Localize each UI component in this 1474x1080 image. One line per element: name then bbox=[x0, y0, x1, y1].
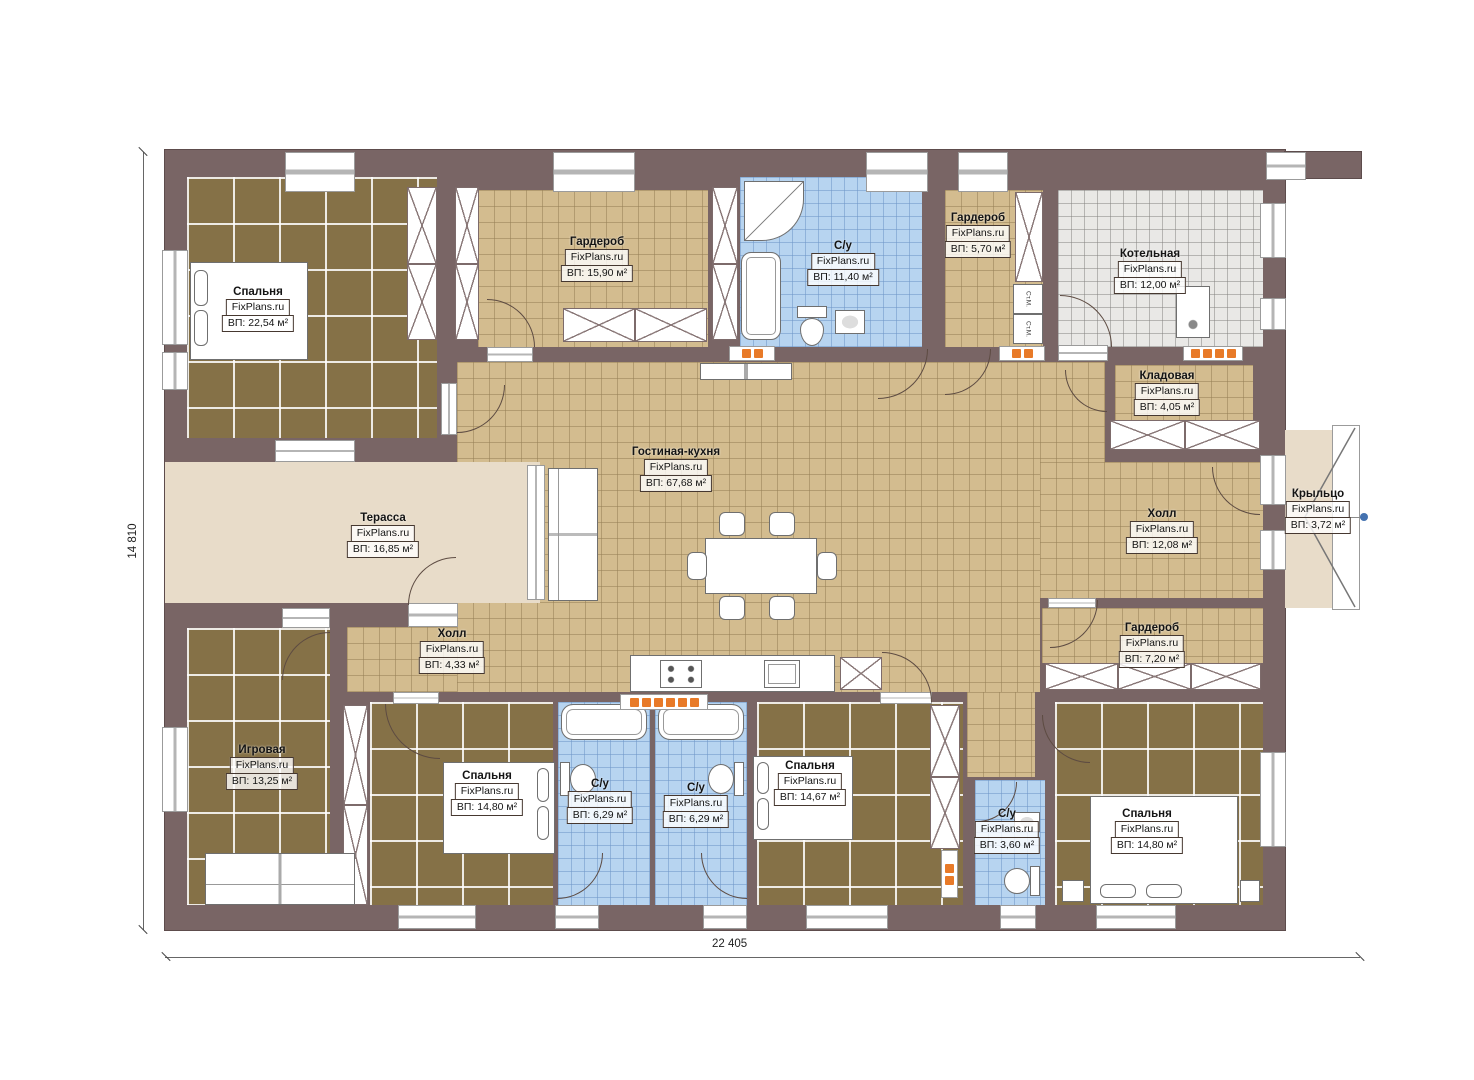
vent-strip bbox=[1183, 346, 1243, 361]
room-label-playroom: Игровая FixPlans.ru ВП: 13,25 м² bbox=[226, 744, 298, 790]
room-site: FixPlans.ru bbox=[420, 641, 485, 658]
chair bbox=[769, 512, 795, 536]
room-label-bedroom-bottom-right: Спальня FixPlans.ru ВП: 14,80 м² bbox=[1111, 808, 1183, 854]
room-name: Котельная bbox=[1114, 248, 1186, 260]
nightstand bbox=[1062, 880, 1084, 902]
room-site: FixPlans.ru bbox=[664, 795, 729, 812]
room-label-pantry: Кладовая FixPlans.ru ВП: 4,05 м² bbox=[1134, 370, 1200, 416]
room-label-porch: Крыльцо FixPlans.ru ВП: 3,72 м² bbox=[1285, 488, 1351, 534]
room-area: ВП: 22,54 м² bbox=[222, 315, 294, 332]
window bbox=[162, 250, 188, 345]
room-area: ВП: 5,70 м² bbox=[945, 241, 1011, 258]
room-name: Спальня bbox=[1111, 808, 1183, 820]
room-area: ВП: 11,40 м² bbox=[807, 269, 879, 286]
window bbox=[1000, 905, 1036, 929]
dishwasher bbox=[840, 657, 882, 690]
room-area: ВП: 15,90 м² bbox=[561, 265, 633, 282]
window bbox=[398, 905, 476, 929]
room-site: FixPlans.ru bbox=[1286, 501, 1351, 518]
room-area: ВП: 4,33 м² bbox=[419, 657, 485, 674]
closet-hatch bbox=[712, 187, 738, 264]
floor-plan-canvas: Ст.М. Ст.М. Спальня FixPlans.ru ВП: 22,5… bbox=[0, 0, 1474, 1080]
window bbox=[162, 727, 188, 812]
pillow bbox=[1100, 884, 1136, 898]
door-threshold bbox=[282, 608, 330, 628]
dimension-line-vertical bbox=[143, 152, 144, 930]
washer-label: Ст.М. bbox=[1025, 291, 1032, 307]
room-area: ВП: 6,29 м² bbox=[663, 811, 729, 828]
room-name: Гардероб bbox=[945, 212, 1011, 224]
room-label-bath-bottom-2: С/у FixPlans.ru ВП: 6,29 м² bbox=[663, 782, 729, 828]
dimension-width: 22 405 bbox=[712, 938, 747, 950]
room-label-bath-bottom-right: С/у FixPlans.ru ВП: 3,60 м² bbox=[974, 808, 1040, 854]
window bbox=[1260, 530, 1286, 570]
room-name: С/у bbox=[974, 808, 1040, 820]
washer: Ст.М. bbox=[1013, 314, 1043, 344]
room-area: ВП: 16,85 м² bbox=[347, 541, 419, 558]
room-label-bath-top: С/у FixPlans.ru ВП: 11,40 м² bbox=[807, 240, 879, 286]
room-label-bedroom-bottom-left: Спальня FixPlans.ru ВП: 14,80 м² bbox=[451, 770, 523, 816]
closet-hatch bbox=[455, 264, 479, 340]
pillow bbox=[1146, 884, 1182, 898]
floor-corridor-down bbox=[967, 692, 1035, 777]
chair bbox=[719, 596, 745, 620]
pantry-shelving bbox=[1185, 420, 1260, 450]
toilet-bowl bbox=[1004, 868, 1030, 894]
room-site: FixPlans.ru bbox=[1130, 521, 1195, 538]
room-site: FixPlans.ru bbox=[568, 791, 633, 808]
room-label-hall-corridor: Холл FixPlans.ru ВП: 4,33 м² bbox=[419, 628, 485, 674]
closet-hatch bbox=[1191, 663, 1261, 690]
pillow bbox=[194, 270, 208, 306]
room-label-bath-bottom-1: С/у FixPlans.ru ВП: 6,29 м² bbox=[567, 778, 633, 824]
room-site: FixPlans.ru bbox=[1120, 635, 1185, 652]
closet-hatch bbox=[407, 264, 437, 340]
room-site: FixPlans.ru bbox=[946, 225, 1011, 242]
room-site: FixPlans.ru bbox=[644, 459, 709, 476]
door-threshold bbox=[441, 383, 457, 435]
room-name: Холл bbox=[419, 628, 485, 640]
room-label-hall-right: Холл FixPlans.ru ВП: 12,08 м² bbox=[1126, 508, 1198, 554]
room-area: ВП: 6,29 м² bbox=[567, 807, 633, 824]
sink bbox=[835, 310, 865, 334]
window bbox=[285, 152, 355, 192]
terrace-door bbox=[408, 603, 458, 627]
room-site: FixPlans.ru bbox=[565, 249, 630, 266]
room-area: ВП: 7,20 м² bbox=[1119, 651, 1185, 668]
room-area: ВП: 14,80 м² bbox=[1111, 837, 1183, 854]
window bbox=[1260, 752, 1286, 847]
room-label-wardrobe-top: Гардероб FixPlans.ru ВП: 15,90 м² bbox=[561, 236, 633, 282]
window-terrace bbox=[527, 465, 545, 600]
window bbox=[958, 152, 1008, 192]
washer-label: Ст.М. bbox=[1025, 321, 1032, 337]
sofa bbox=[548, 468, 598, 601]
chair bbox=[687, 552, 707, 580]
pantry-shelving bbox=[1110, 420, 1185, 450]
room-name: С/у bbox=[663, 782, 729, 794]
room-site: FixPlans.ru bbox=[1115, 821, 1180, 838]
room-name: Крыльцо bbox=[1285, 488, 1351, 500]
entry-door bbox=[1260, 455, 1286, 505]
pillow bbox=[537, 768, 549, 802]
room-name: Гостиная-кухня bbox=[632, 446, 720, 458]
chair bbox=[719, 512, 745, 536]
room-name: С/у bbox=[567, 778, 633, 790]
room-area: ВП: 12,00 м² bbox=[1114, 277, 1186, 294]
closet-hatch bbox=[455, 187, 479, 264]
chair bbox=[769, 596, 795, 620]
room-label-bedroom-top-left: Спальня FixPlans.ru ВП: 22,54 м² bbox=[222, 286, 294, 332]
room-site: FixPlans.ru bbox=[778, 773, 843, 790]
room-name: Гардероб bbox=[1119, 622, 1185, 634]
window bbox=[275, 440, 355, 462]
window bbox=[1266, 152, 1306, 180]
leader-dot bbox=[1360, 513, 1368, 521]
window bbox=[806, 905, 888, 929]
door-threshold bbox=[487, 347, 533, 362]
vent-strip bbox=[941, 850, 958, 898]
closet-hatch bbox=[1045, 663, 1118, 690]
closet-hatch bbox=[930, 777, 960, 849]
room-name: Кладовая bbox=[1134, 370, 1200, 382]
pillow bbox=[537, 806, 549, 840]
closet-hatch bbox=[407, 187, 437, 264]
closet-hatch bbox=[563, 308, 635, 342]
toilet-tank bbox=[797, 306, 827, 318]
room-label-terrace: Терасса FixPlans.ru ВП: 16,85 м² bbox=[347, 512, 419, 558]
dimension-height: 14 810 bbox=[127, 511, 139, 571]
window bbox=[1260, 298, 1286, 330]
room-label-living-kitchen: Гостиная-кухня FixPlans.ru ВП: 67,68 м² bbox=[632, 446, 720, 492]
bathtub bbox=[741, 252, 781, 340]
room-name: Спальня bbox=[222, 286, 294, 298]
toilet-tank bbox=[1030, 866, 1040, 896]
door-threshold bbox=[393, 692, 439, 704]
closet-hatch bbox=[930, 705, 960, 777]
vent-strip bbox=[999, 346, 1045, 361]
window bbox=[1096, 905, 1176, 929]
room-area: ВП: 14,80 м² bbox=[451, 799, 523, 816]
room-area: ВП: 14,67 м² bbox=[774, 789, 846, 806]
pillow bbox=[757, 798, 769, 830]
room-site: FixPlans.ru bbox=[230, 757, 295, 774]
vent-strip bbox=[729, 346, 775, 361]
closet-hatch bbox=[712, 264, 738, 340]
door-threshold bbox=[555, 905, 599, 929]
closet-hatch bbox=[1015, 192, 1043, 282]
room-site: FixPlans.ru bbox=[455, 783, 520, 800]
closet-hatch bbox=[635, 308, 707, 342]
tv-console bbox=[700, 363, 792, 380]
room-label-wardrobe-right: Гардероб FixPlans.ru ВП: 7,20 м² bbox=[1119, 622, 1185, 668]
room-name: Терасса bbox=[347, 512, 419, 524]
window bbox=[866, 152, 928, 192]
room-site: FixPlans.ru bbox=[1118, 261, 1183, 278]
room-name: Игровая bbox=[226, 744, 298, 756]
door-threshold bbox=[1058, 345, 1108, 361]
window bbox=[1260, 203, 1286, 258]
pillow bbox=[194, 310, 208, 346]
room-label-boiler: Котельная FixPlans.ru ВП: 12,00 м² bbox=[1114, 248, 1186, 294]
room-site: FixPlans.ru bbox=[351, 525, 416, 542]
room-name: Холл bbox=[1126, 508, 1198, 520]
kitchen-sink bbox=[764, 660, 800, 688]
room-area: ВП: 3,72 м² bbox=[1285, 517, 1351, 534]
room-name: С/у bbox=[807, 240, 879, 252]
room-site: FixPlans.ru bbox=[975, 821, 1040, 838]
room-area: ВП: 12,08 м² bbox=[1126, 537, 1198, 554]
washer: Ст.М. bbox=[1013, 284, 1043, 314]
room-name: Спальня bbox=[451, 770, 523, 782]
closet-hatch bbox=[343, 705, 368, 805]
room-area: ВП: 67,68 м² bbox=[640, 475, 712, 492]
room-site: FixPlans.ru bbox=[811, 253, 876, 270]
room-name: Спальня bbox=[774, 760, 846, 772]
room-name: Гардероб bbox=[561, 236, 633, 248]
door-threshold bbox=[703, 905, 747, 929]
dimension-line-horizontal bbox=[165, 957, 1360, 958]
window bbox=[162, 352, 188, 390]
room-area: ВП: 3,60 м² bbox=[974, 837, 1040, 854]
room-label-bedroom-bottom-middle: Спальня FixPlans.ru ВП: 14,67 м² bbox=[774, 760, 846, 806]
dining-table bbox=[705, 538, 817, 594]
toilet-tank bbox=[734, 762, 744, 796]
room-area: ВП: 13,25 м² bbox=[226, 773, 298, 790]
stove bbox=[660, 660, 702, 688]
room-area: ВП: 4,05 м² bbox=[1134, 399, 1200, 416]
room-site: FixPlans.ru bbox=[1135, 383, 1200, 400]
sofa bbox=[205, 853, 355, 905]
vent-strip bbox=[620, 694, 708, 710]
room-label-wardrobe-small: Гардероб FixPlans.ru ВП: 5,70 м² bbox=[945, 212, 1011, 258]
window bbox=[553, 152, 635, 192]
pillow bbox=[757, 762, 769, 794]
room-site: FixPlans.ru bbox=[226, 299, 291, 316]
chair bbox=[817, 552, 837, 580]
nightstand bbox=[1240, 880, 1260, 902]
